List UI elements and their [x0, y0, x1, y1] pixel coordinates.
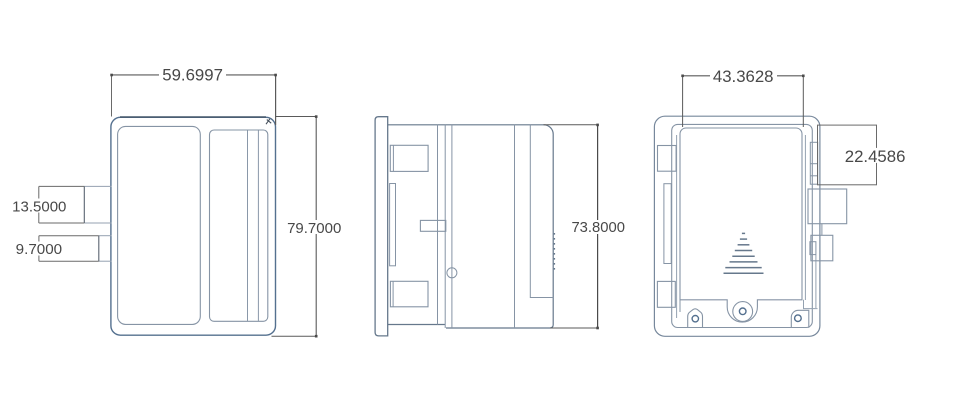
svg-text:79.7000: 79.7000: [287, 220, 341, 237]
svg-text:22.4586: 22.4586: [845, 147, 906, 166]
svg-text:73.8000: 73.8000: [571, 220, 625, 236]
svg-text:13.5000: 13.5000: [12, 198, 66, 215]
svg-text:9.7000: 9.7000: [16, 241, 62, 258]
svg-text:59.6997: 59.6997: [162, 66, 223, 85]
svg-text:43.3628: 43.3628: [713, 67, 774, 86]
